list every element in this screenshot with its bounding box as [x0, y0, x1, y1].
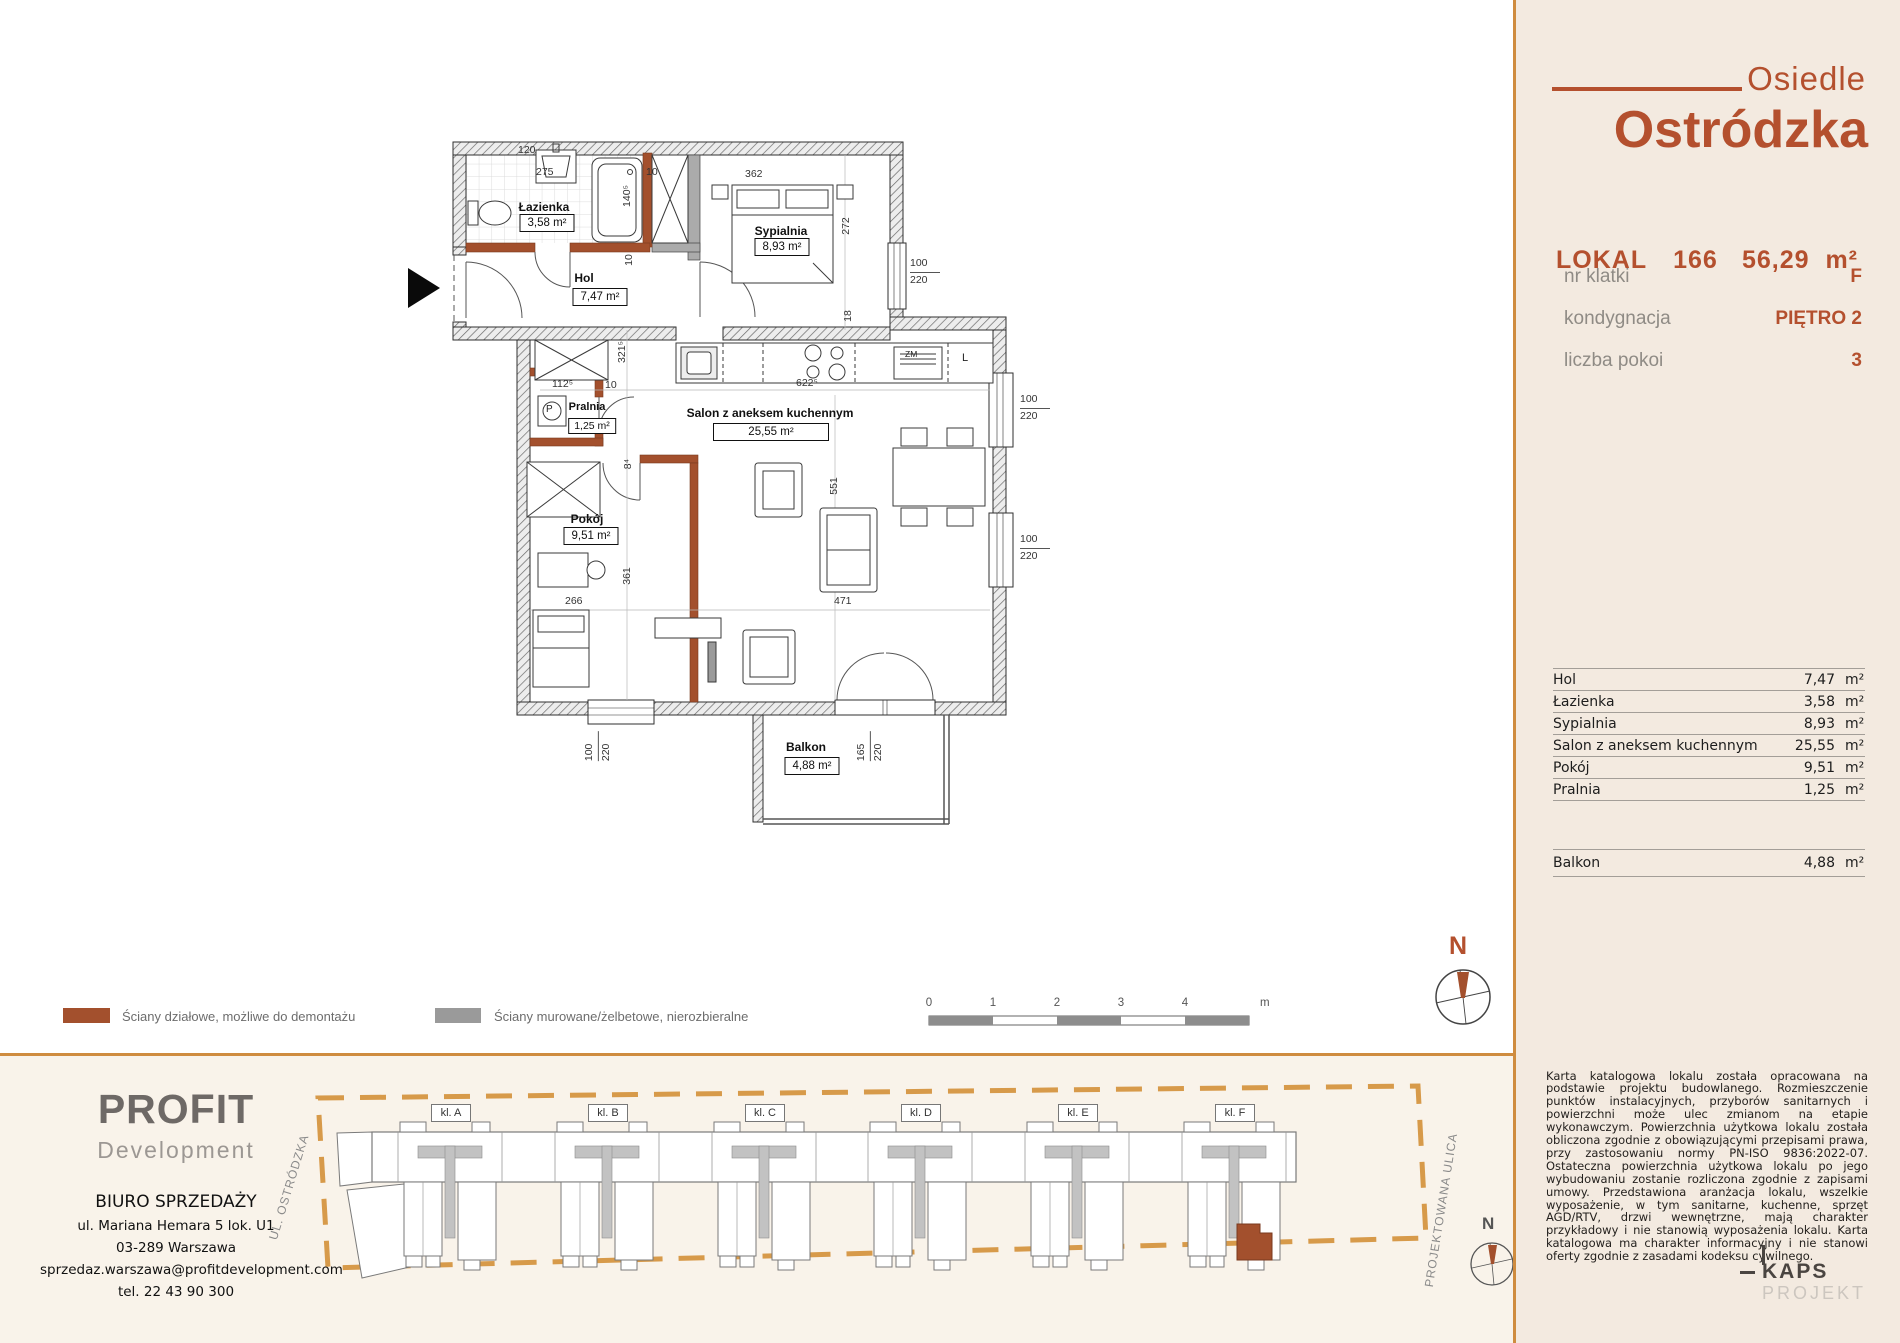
- developer-block: PROFIT Development BIURO SPRZEDAŻY ul. M…: [40, 1086, 312, 1300]
- dim-label: 272: [840, 211, 852, 241]
- table-row: Łazienka3,58m²: [1553, 690, 1865, 712]
- info-row-pokoje: liczba pokoi 3: [1564, 350, 1862, 372]
- table-row: Pralnia1,25m²: [1553, 778, 1865, 800]
- balcony-table: Balkon4,88m²: [1553, 849, 1865, 877]
- fridge-label: L: [962, 352, 968, 364]
- stair-label-b: kl. B: [588, 1104, 628, 1122]
- room-label-sypialnia: Sypialnia: [755, 224, 808, 238]
- room-label-hol: Hol: [574, 271, 593, 285]
- room-area-salon: 25,55 m²: [713, 423, 829, 441]
- window-dim: 100220: [1020, 533, 1056, 563]
- dim-label: 140⁵: [621, 181, 633, 211]
- info-sidebar: Osiedle Ostródzka LOKAL 166 56,29 m² nr …: [1516, 0, 1900, 1343]
- washer-label: P: [546, 404, 553, 415]
- table-row: Salon z aneksem kuchennym25,55m²: [1553, 734, 1865, 756]
- info-row-kondygnacja: kondygnacja PIĘTRO 2: [1564, 308, 1862, 330]
- window-dim: 100220: [583, 725, 613, 761]
- scale-tick: 1: [985, 997, 1001, 1009]
- dim-label: 622⁵: [796, 377, 818, 389]
- table-row: Balkon4,88m²: [1553, 850, 1865, 876]
- scale-bar: [929, 1016, 1249, 1025]
- kaps-logo: KAPS PROJEKT: [1740, 1243, 1890, 1323]
- address-line: ul. Mariana Hemara 5 lok. U1: [40, 1218, 312, 1234]
- kaps-sub: PROJEKT: [1762, 1283, 1866, 1304]
- brand-accent-line: [1552, 87, 1742, 91]
- room-label-pokoj: Pokój: [571, 512, 604, 526]
- horizontal-divider: [0, 1053, 1513, 1056]
- phone-text: tel. 22 43 90 300: [40, 1284, 312, 1300]
- dim-label: 10: [605, 379, 617, 391]
- developer-logo: PROFIT: [40, 1086, 312, 1133]
- room-label-pralnia: Pralnia: [569, 401, 606, 413]
- dim-label: 18: [842, 301, 854, 331]
- table-row: Sypialnia8,93m²: [1553, 712, 1865, 734]
- vertical-divider: [1513, 0, 1516, 1343]
- scale-unit: m: [1260, 997, 1270, 1009]
- dim-label: 112⁵: [552, 378, 573, 390]
- room-area-balkon: 4,88 m²: [784, 757, 839, 775]
- legend-swatch-structural: [435, 1008, 481, 1023]
- brand-name: Ostródzka: [1614, 100, 1868, 160]
- window-dim: 100220: [910, 257, 946, 287]
- north-label: N: [1449, 932, 1467, 961]
- legend-swatch-partition: [63, 1008, 110, 1023]
- sales-office-title: BIURO SPRZEDAŻY: [40, 1192, 312, 1212]
- dim-label: 10: [646, 166, 658, 178]
- window-dim: 100220: [1020, 393, 1056, 423]
- stair-label-c: kl. C: [745, 1104, 785, 1122]
- dim-label: 10: [623, 245, 635, 275]
- dim-label: 275: [536, 166, 554, 178]
- legend-label-partition: Ściany działowe, możliwe do demontażu: [122, 1009, 355, 1024]
- dim-label: 361: [621, 561, 633, 591]
- dim-label: 362: [745, 168, 763, 180]
- legend-label-structural: Ściany murowane/żelbetowe, nierozbieraln…: [494, 1009, 748, 1024]
- stair-label-e: kl. E: [1058, 1104, 1098, 1122]
- dim-label: 266: [565, 595, 583, 607]
- entrance-arrow: [408, 268, 440, 308]
- dim-label: 120: [518, 144, 536, 156]
- room-label-salon: Salon z aneksem kuchennym: [687, 406, 854, 420]
- dishwasher-label: ZM: [905, 349, 917, 359]
- room-label-balkon: Balkon: [786, 740, 826, 754]
- room-area-table: Hol7,47m² Łazienka3,58m² Sypialnia8,93m²…: [1553, 668, 1865, 801]
- scale-tick: 2: [1049, 997, 1065, 1009]
- compass-icon: [1436, 970, 1490, 1024]
- room-area-hol: 7,47 m²: [572, 288, 627, 306]
- stair-label-d: kl. D: [901, 1104, 941, 1122]
- scale-tick: 4: [1177, 997, 1193, 1009]
- site-compass-icon: [1471, 1243, 1513, 1285]
- room-area-lazienka: 3,58 m²: [519, 214, 574, 232]
- info-row-klatka: nr klatki F: [1564, 266, 1862, 288]
- kaps-name: KAPS: [1762, 1260, 1828, 1284]
- window-dim: 165220: [855, 725, 885, 761]
- room-area-pralnia: 1,25 m²: [568, 418, 616, 434]
- email-text: sprzedaz.warszawa@profitdevelopment.com: [40, 1262, 312, 1278]
- legal-disclaimer: Karta katalogowa lokalu została opracowa…: [1546, 1070, 1868, 1264]
- kaps-logo-mark: [1740, 1271, 1755, 1274]
- dim-label: 321⁵: [616, 337, 628, 367]
- stair-label-f: kl. F: [1215, 1104, 1255, 1122]
- room-area-sypialnia: 8,93 m²: [754, 238, 809, 256]
- developer-logo-sub: Development: [40, 1137, 312, 1164]
- dim-label: 471: [834, 595, 852, 607]
- table-row: Hol7,47m²: [1553, 668, 1865, 690]
- catalog-card: Łazienka 3,58 m² Sypialnia 8,93 m² Hol 7…: [0, 0, 1900, 1343]
- room-label-lazienka: Łazienka: [519, 200, 570, 214]
- address-line: 03-289 Warszawa: [40, 1240, 312, 1256]
- stair-label-a: kl. A: [431, 1104, 471, 1122]
- scale-tick: 3: [1113, 997, 1129, 1009]
- dim-label: 8⁴: [622, 449, 634, 479]
- floor-plan-drawing: [0, 0, 1513, 1053]
- scale-tick: 0: [921, 997, 937, 1009]
- room-area-pokoj: 9,51 m²: [563, 527, 618, 545]
- dim-label: 551: [828, 471, 840, 501]
- brand-prefix: Osiedle: [1747, 60, 1866, 98]
- table-row: Pokój9,51m²: [1553, 756, 1865, 778]
- site-north-label: N: [1482, 1214, 1494, 1234]
